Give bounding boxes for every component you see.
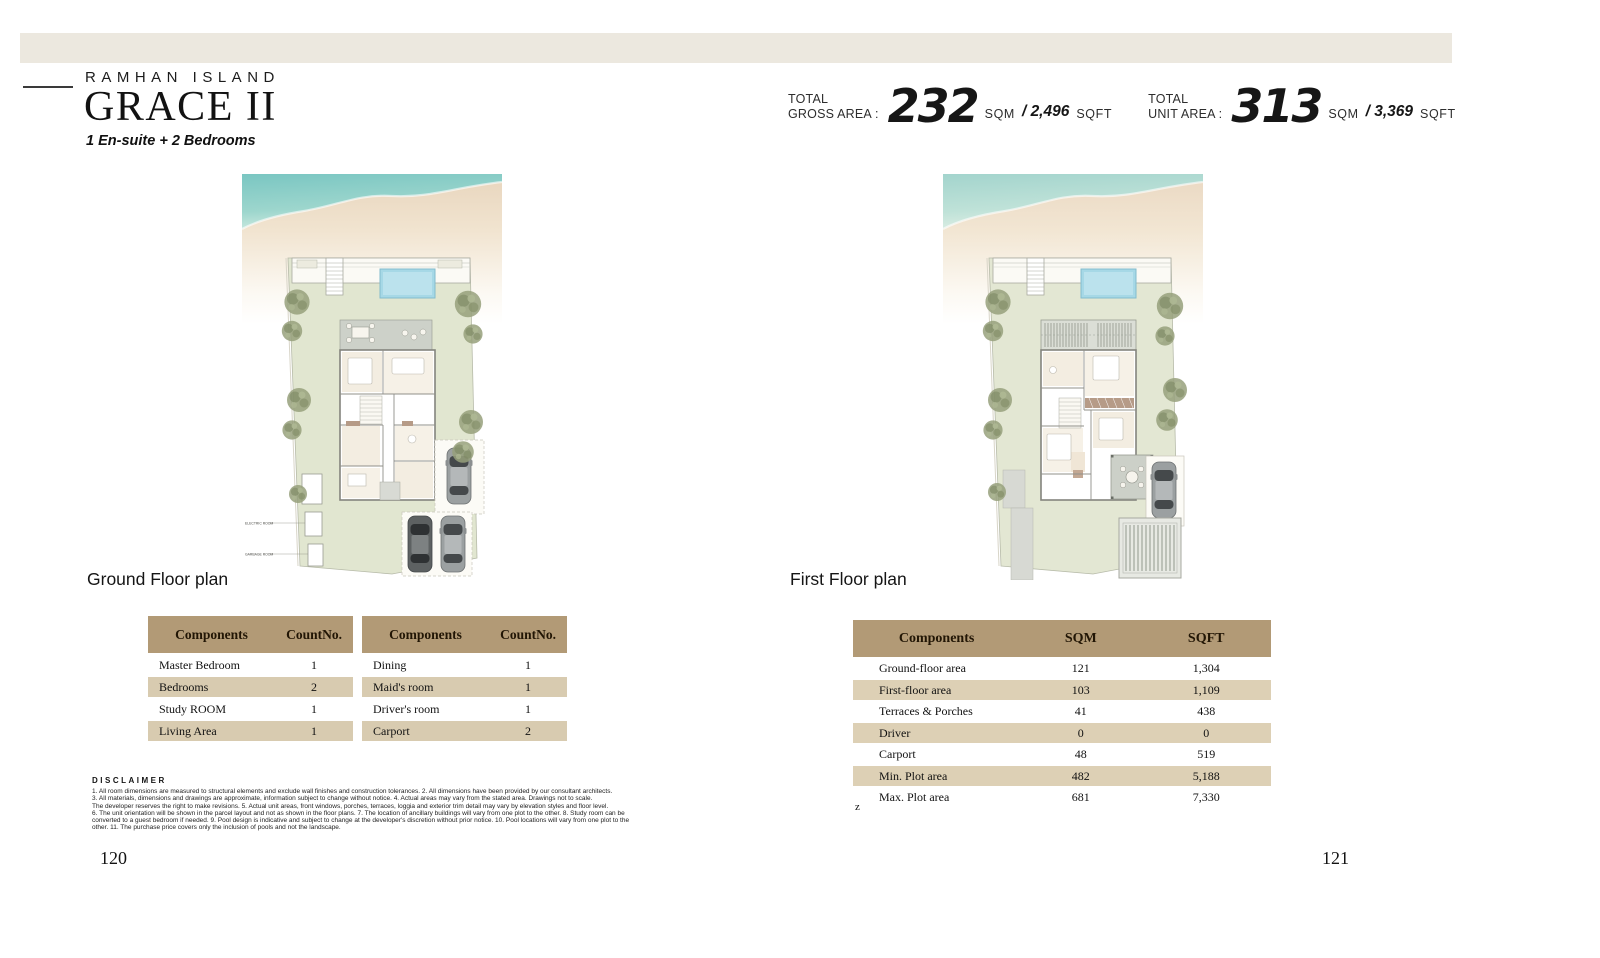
car-area [1146,456,1184,526]
terrace [340,320,432,350]
table-row: Max. Plot area6817,330 [853,788,1271,808]
electric-room-label: ELECTRIC ROOM [245,522,273,526]
first-floor-caption: First Floor plan [790,569,907,590]
unit-area-value: 313 [1231,88,1321,124]
table-row: First-floor area1031,109 [853,680,1271,700]
disclaimer-line: 6. The unit orientation will be shown in… [92,810,667,817]
stairs [1027,258,1044,295]
table-header: Components CountNo. [148,616,353,653]
table-row: Min. Plot area4825,188 [853,766,1271,786]
pool [380,269,435,298]
stairs [326,258,343,295]
areas-table: Components SQM SQFT Ground-floor area121… [853,620,1271,808]
unit-area-stat: TOTAL UNIT AREA : 313 SQM / 3,369 SQFT [1148,88,1456,124]
table-row: Study ROOM1 [148,699,353,719]
first-floor-plan-illustration [943,174,1203,580]
unit-area-sqft-value: / 3,369 [1366,103,1413,124]
gross-area-sqft-value: / 2,496 [1022,103,1069,124]
disclaimer: DISCLAIMER 1. All room dimensions are me… [92,776,667,832]
ground-floor-caption: Ground Floor plan [87,569,228,590]
disclaimer-line: The developer reserves the right to make… [92,803,667,810]
top-band [20,33,1452,63]
page-number-left: 120 [100,848,127,869]
page-title: GRACE II [84,86,277,128]
unit-area-unit-sqm: SQM [1328,107,1358,124]
components-table-left: Components CountNo. Master Bedroom1 Bedr… [148,616,353,741]
gross-area-label: TOTAL GROSS AREA : [788,92,879,124]
gross-area-value: 232 [888,88,978,124]
table-header: Components CountNo. [362,616,567,653]
table-header: Components SQM SQFT [853,620,1271,657]
disclaimer-line: 3. All materials, dimensions and drawing… [92,795,667,802]
gross-area-unit-sqft: SQFT [1076,107,1112,124]
table-row: Master Bedroom1 [148,655,353,675]
service-rooms: ELECTRIC ROOM GARBAGE ROOM [245,474,323,566]
disclaimer-line: 1. All room dimensions are measured to s… [92,788,667,795]
table-row: Driver00 [853,723,1271,743]
table-row: Living Area1 [148,721,353,741]
table-row: Dining1 [362,655,567,675]
table-row: Terraces & Porches41438 [853,702,1271,722]
pergola-roof [1041,320,1136,350]
unit-subtitle: 1 En-suite + 2 Bedrooms [86,133,256,149]
disclaimer-line: converted to a guest bedroom if needed. … [92,817,667,824]
unit-area-unit-sqft: SQFT [1420,107,1456,124]
carport-roof [1119,518,1181,578]
components-table-right: Components CountNo. Dining1 Maid's room1… [362,616,567,741]
unit-area-label: TOTAL UNIT AREA : [1148,92,1222,124]
table-row: Carport48519 [853,745,1271,765]
gross-area-unit-sqm: SQM [985,107,1015,124]
header-rule [23,86,73,88]
pool [1081,269,1136,298]
gross-area-stat: TOTAL GROSS AREA : 232 SQM / 2,496 SQFT [788,88,1112,124]
table-row: Bedrooms2 [148,677,353,697]
table-row: Ground-floor area1211,304 [853,659,1271,679]
table-row: Carport2 [362,721,567,741]
dark-car [408,516,432,572]
garbage-room-label: GARBAGE ROOM [245,553,273,557]
page-number-right: 121 [1322,848,1349,869]
disclaimer-line: other. 11. The purchase price covers onl… [92,824,667,831]
disclaimer-title: DISCLAIMER [92,776,667,785]
area-stats: TOTAL GROSS AREA : 232 SQM / 2,496 SQFT … [788,88,1456,124]
house-footprint [340,350,435,500]
ground-floor-plan-illustration: ELECTRIC ROOM GARBAGE ROOM [242,174,502,580]
table-footnote: z [855,801,860,813]
table-row: Maid's room1 [362,677,567,697]
table-row: Driver's room1 [362,699,567,719]
